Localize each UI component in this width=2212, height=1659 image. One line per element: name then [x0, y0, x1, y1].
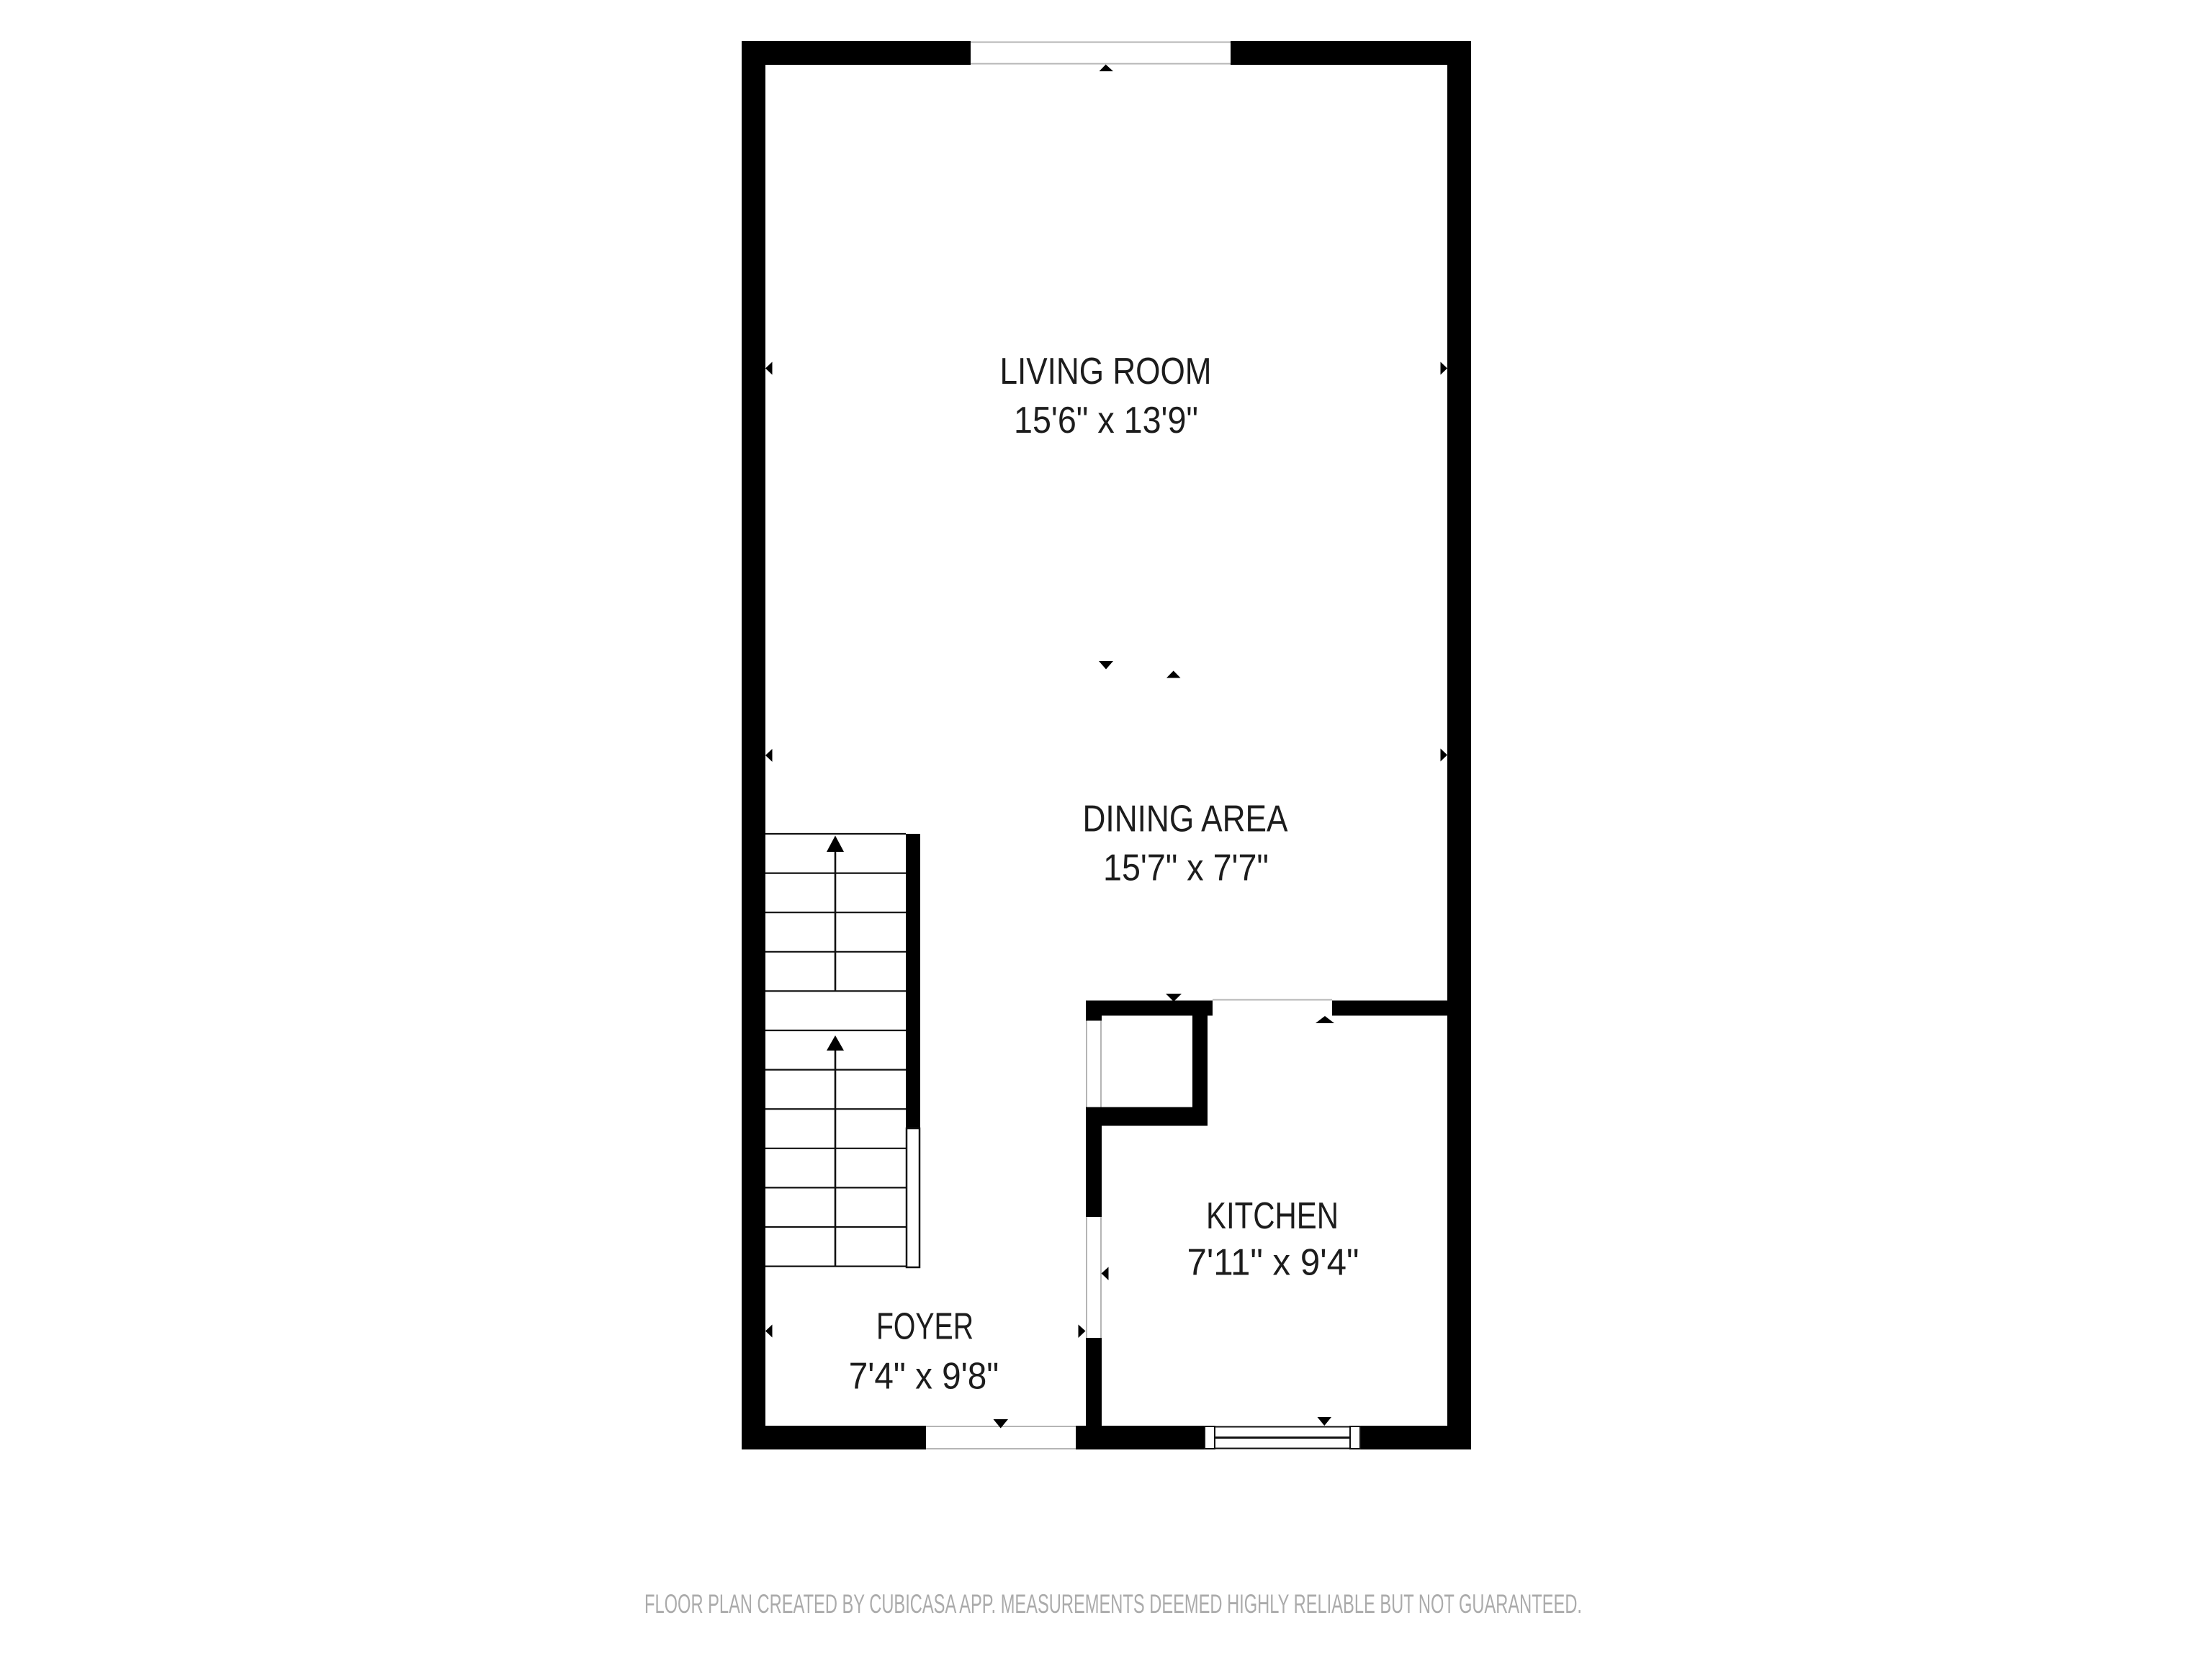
- svg-text:15'7" x 7'7": 15'7" x 7'7": [1103, 848, 1269, 889]
- svg-text:7'11" x 9'4": 7'11" x 9'4": [1187, 1242, 1359, 1284]
- svg-text:7'4" x 9'8": 7'4" x 9'8": [849, 1356, 999, 1398]
- svg-text:FOYER: FOYER: [876, 1306, 974, 1348]
- svg-text:15'6" x 13'9": 15'6" x 13'9": [1014, 400, 1198, 441]
- svg-text:FLOOR PLAN CREATED BY CUBICASA: FLOOR PLAN CREATED BY CUBICASA APP. MEAS…: [644, 1589, 1582, 1619]
- svg-text:KITCHEN: KITCHEN: [1206, 1195, 1339, 1237]
- svg-text:DINING AREA: DINING AREA: [1083, 799, 1288, 840]
- svg-text:LIVING ROOM: LIVING ROOM: [1000, 351, 1212, 392]
